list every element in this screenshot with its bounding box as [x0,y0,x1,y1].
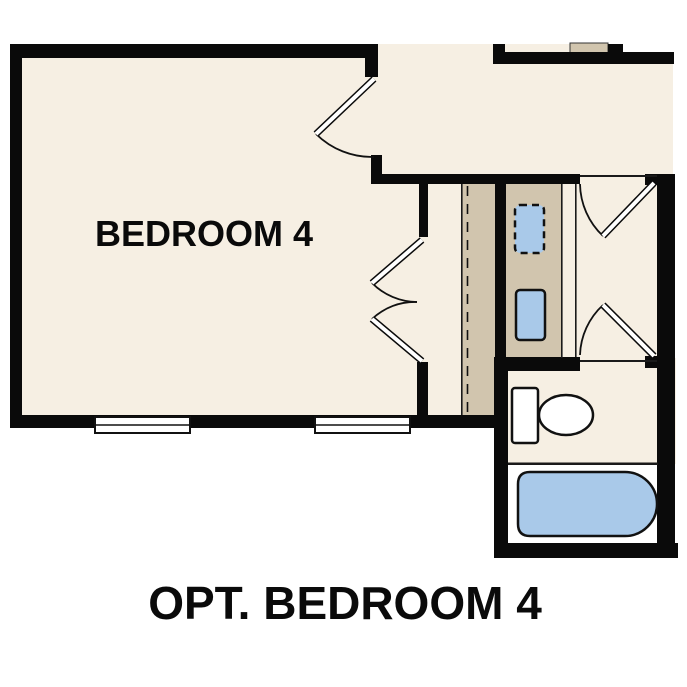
wall-bath-west [494,357,508,558]
sink-icon [516,290,545,340]
wall-top-right [493,52,674,64]
hall-floor-top [377,44,493,53]
wall-right [657,174,675,558]
room-label: BEDROOM 4 [95,213,313,255]
wall-bedroom-east-mid [419,184,428,237]
wall-vanity-west [495,174,506,371]
wall-hall-bottom [371,174,580,184]
chase-edge-line [461,184,463,415]
tub-room-divider-line [508,463,658,466]
wall-stub-door-top [365,58,378,77]
wall-bedroom-bottom [10,415,495,428]
opening-header-bottom [580,360,657,362]
optional-sink-icon [515,205,544,253]
wall-stub-up-left [493,44,505,64]
compartment-edge-line [575,184,577,357]
wall-bedroom-east-lower [417,362,428,415]
window-1 [95,417,190,433]
upper-room-floor-fragment [505,44,570,53]
upper-door-header [570,43,608,53]
window-2 [315,417,410,433]
opening-header-top [580,175,657,177]
wall-bedroom-top [10,44,378,58]
wall-stub-up-right [608,44,623,64]
wall-left [10,44,22,428]
hall-floor [377,52,673,184]
wall-bath-bottom [494,543,678,558]
vanity-counter-edge-line [561,184,563,358]
floorplan-stage: BEDROOM 4 OPT. BEDROOM 4 [0,0,687,687]
plan-caption: OPT. BEDROOM 4 [148,576,542,630]
bathtub-icon [518,472,657,536]
